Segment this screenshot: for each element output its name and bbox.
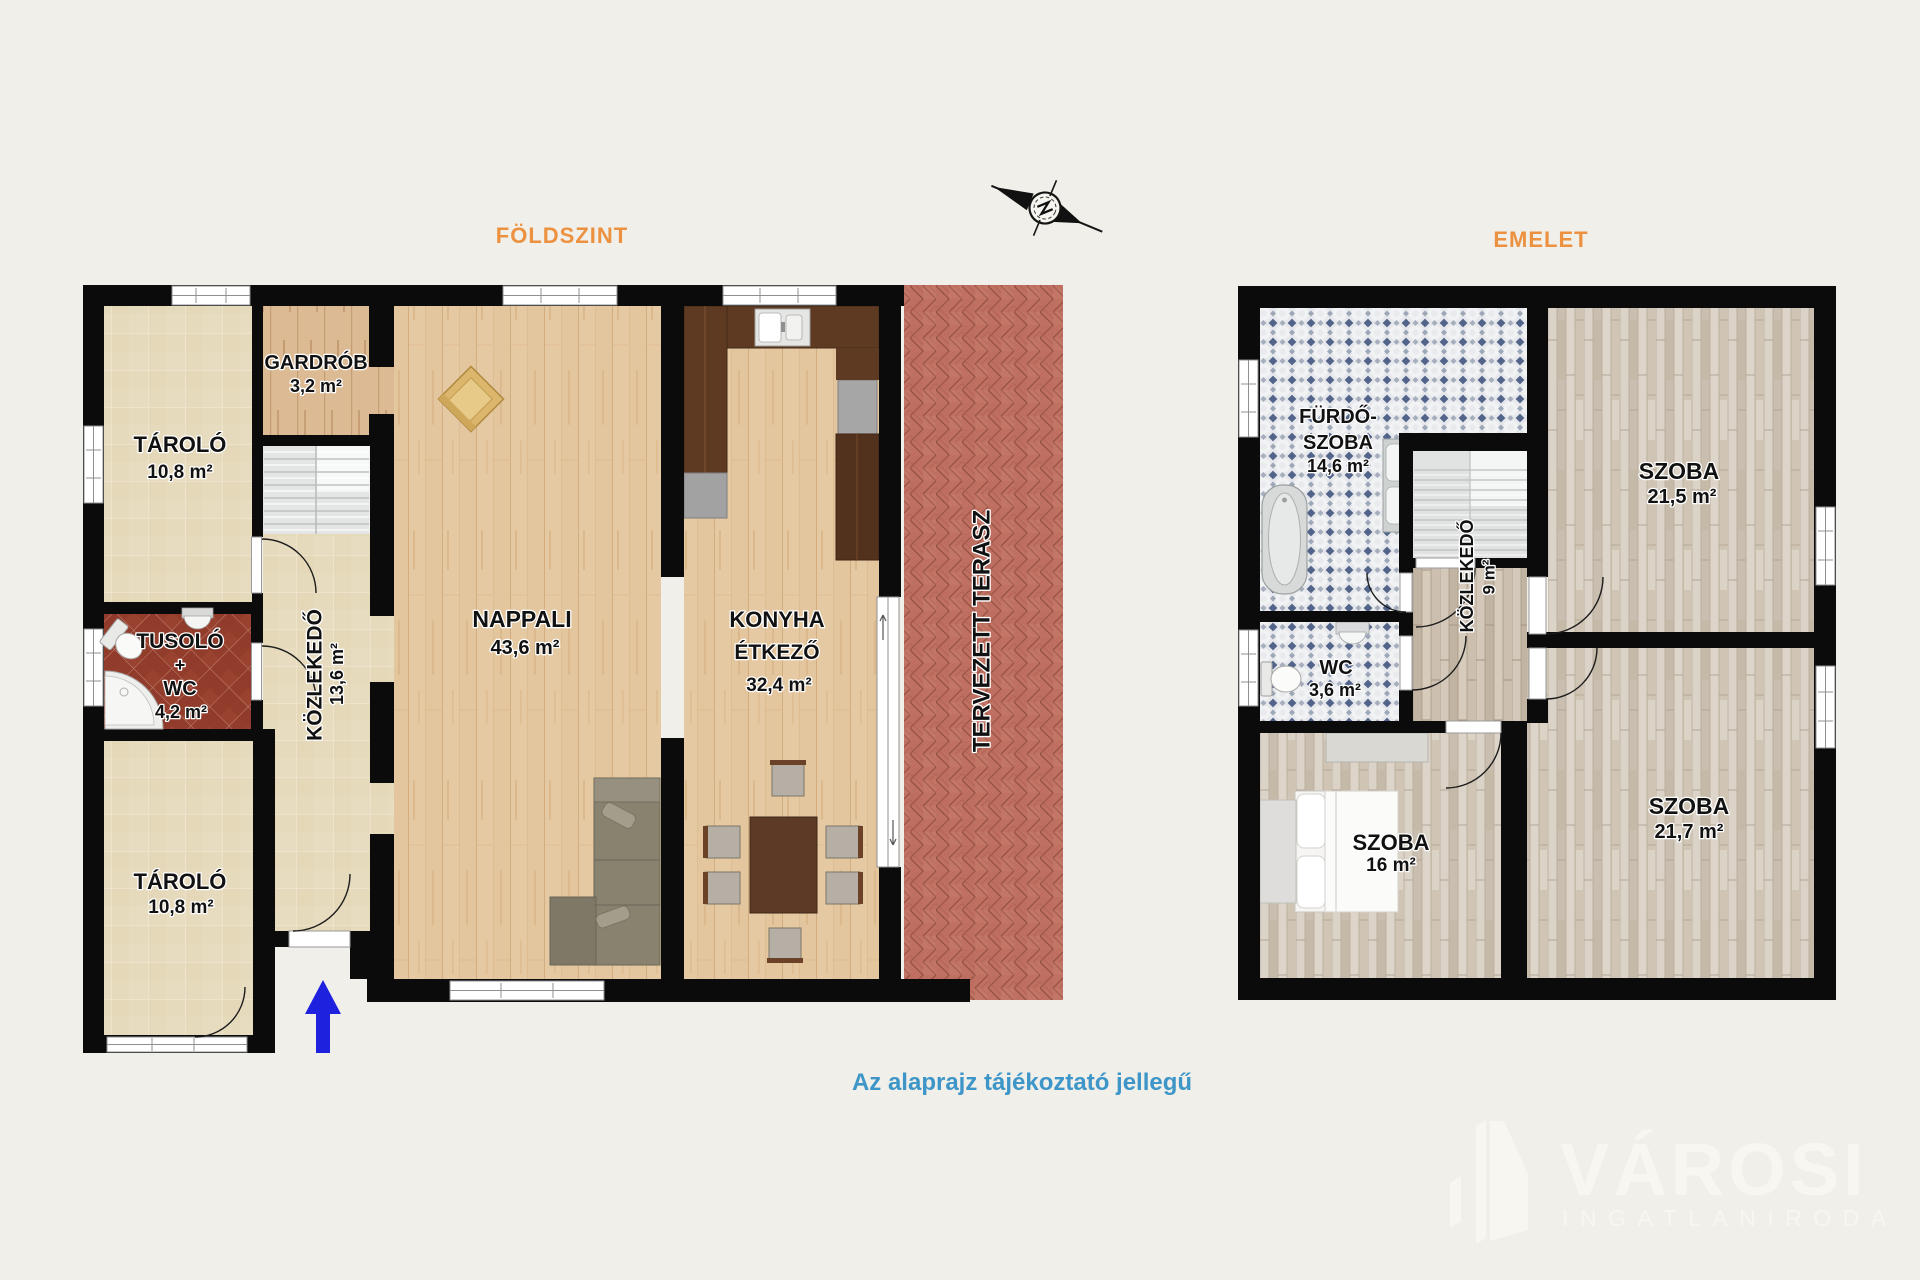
svg-text:TÁROLÓ: TÁROLÓ — [134, 869, 227, 894]
svg-text:+: + — [175, 655, 186, 675]
svg-text:SZOBA: SZOBA — [1649, 793, 1730, 819]
svg-text:43,6 m²: 43,6 m² — [491, 637, 560, 659]
svg-text:TERVEZETT TERASZ: TERVEZETT TERASZ — [968, 510, 995, 752]
svg-text:GARDRÓB: GARDRÓB — [264, 350, 367, 374]
svg-text:TÁROLÓ: TÁROLÓ — [134, 432, 227, 457]
svg-text:WC: WC — [163, 678, 196, 700]
svg-text:9 m²: 9 m² — [1479, 559, 1498, 594]
svg-text:ÉTKEZŐ: ÉTKEZŐ — [734, 641, 819, 664]
svg-text:32,4 m²: 32,4 m² — [746, 675, 811, 696]
svg-text:4,2 m²: 4,2 m² — [155, 702, 207, 722]
svg-text:TUSOLÓ: TUSOLÓ — [136, 629, 224, 653]
svg-text:3,6 m²: 3,6 m² — [1309, 680, 1361, 700]
svg-text:14,6 m²: 14,6 m² — [1307, 456, 1369, 476]
svg-text:VÁROSI: VÁROSI — [1560, 1128, 1868, 1211]
svg-text:KONYHA: KONYHA — [729, 607, 824, 632]
svg-text:KÖZLEKEDŐ: KÖZLEKEDŐ — [304, 609, 327, 741]
svg-text:3,2 m²: 3,2 m² — [290, 376, 342, 396]
svg-text:KÖZLEKEDŐ: KÖZLEKEDŐ — [1456, 519, 1477, 632]
svg-text:21,7 m²: 21,7 m² — [1655, 821, 1724, 843]
svg-text:16 m²: 16 m² — [1366, 855, 1416, 876]
svg-text:SZOBA: SZOBA — [1303, 432, 1373, 454]
svg-text:SZOBA: SZOBA — [1353, 830, 1430, 855]
svg-text:EMELET: EMELET — [1493, 227, 1588, 252]
svg-text:Az alaprajz tájékoztató jelleg: Az alaprajz tájékoztató jellegű — [852, 1069, 1192, 1096]
svg-text:SZOBA: SZOBA — [1639, 458, 1720, 484]
svg-text:FÜRDŐ-: FÜRDŐ- — [1299, 405, 1377, 428]
svg-text:WC: WC — [1319, 657, 1352, 679]
svg-text:10,8 m²: 10,8 m² — [147, 462, 212, 483]
svg-text:INGATLANIRODA: INGATLANIRODA — [1562, 1205, 1898, 1231]
svg-text:FÖLDSZINT: FÖLDSZINT — [496, 223, 628, 248]
svg-text:21,5 m²: 21,5 m² — [1648, 486, 1717, 508]
svg-text:13,6 m²: 13,6 m² — [327, 643, 347, 705]
svg-text:NAPPALI: NAPPALI — [472, 606, 571, 632]
svg-text:10,8 m²: 10,8 m² — [148, 897, 213, 918]
